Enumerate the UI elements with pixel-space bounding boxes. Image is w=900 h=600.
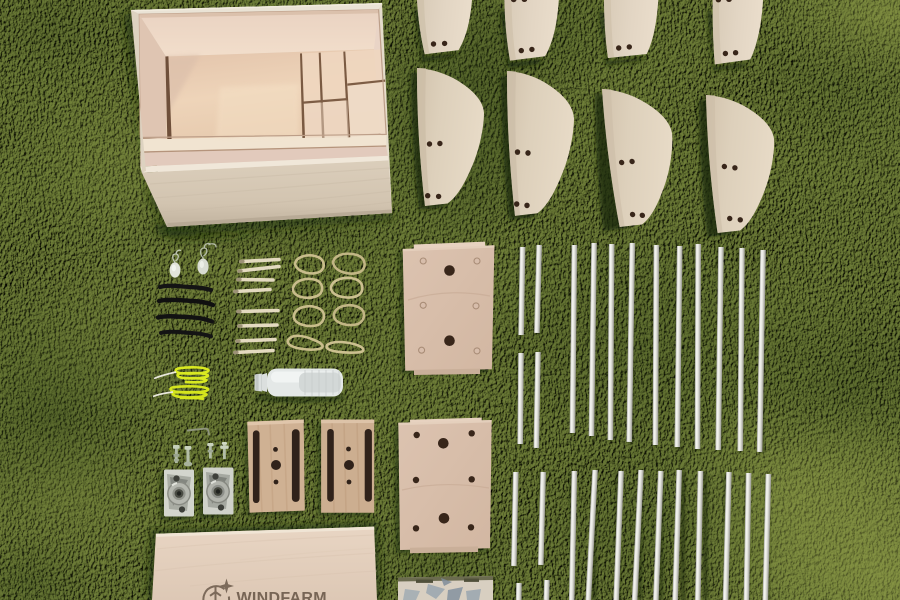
svg-text:WINDFARM: WINDFARM	[237, 590, 327, 600]
